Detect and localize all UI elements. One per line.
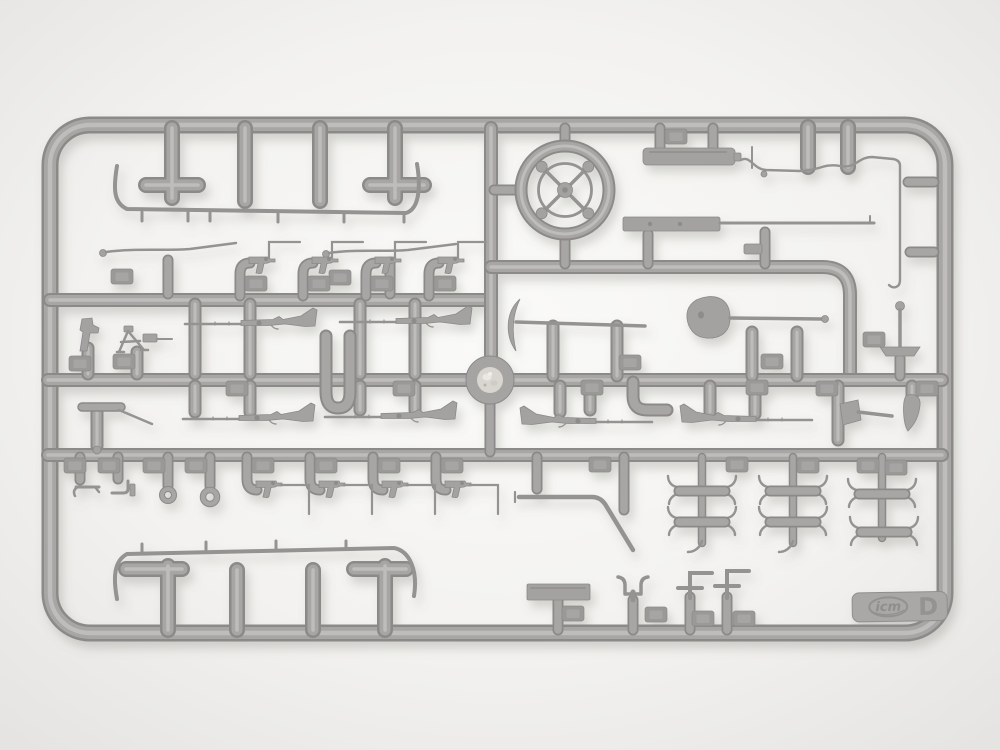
part-stowage-box <box>643 148 741 165</box>
sprue-photo: icm D <box>0 0 1000 750</box>
photo-stage: icm D <box>0 0 1000 750</box>
part-base-plate <box>527 584 590 600</box>
sprue-letter: D <box>918 592 938 620</box>
sprue-letter-tab: icm D <box>852 591 947 622</box>
injection-point-disc <box>466 356 514 404</box>
brand-logo-text: icm <box>875 600 901 615</box>
